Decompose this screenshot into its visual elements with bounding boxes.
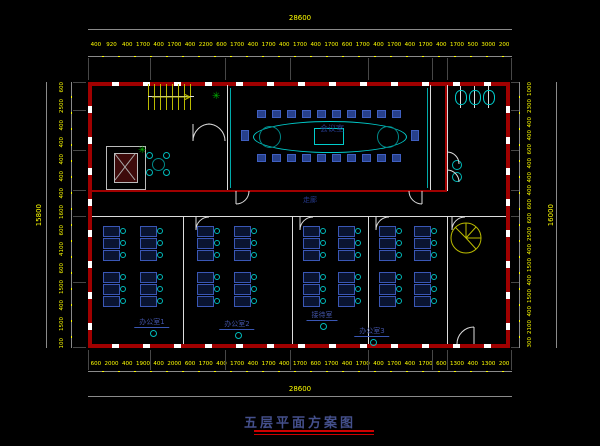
desk-icon (379, 284, 396, 295)
desk-icon (103, 272, 120, 283)
drawing-title: 五层平面方案图 (244, 412, 356, 431)
chair-icon (362, 110, 371, 118)
chair-icon (431, 252, 437, 258)
extension-line (73, 190, 86, 191)
chair-icon (120, 298, 126, 304)
desk-icon (379, 250, 396, 261)
chair-icon (355, 252, 361, 258)
desk-icon (103, 238, 120, 249)
chair-icon (120, 228, 126, 234)
chair-icon (157, 286, 163, 292)
desk-icon (379, 296, 396, 307)
chair-icon (355, 286, 361, 292)
extension-line (511, 150, 519, 151)
desk-icon (234, 284, 251, 295)
desk-icon (303, 250, 320, 261)
extension-line (150, 350, 151, 370)
desk-icon (379, 272, 396, 283)
chair-icon (396, 298, 402, 304)
chair-icon (320, 286, 326, 292)
desk-icon (140, 226, 157, 237)
chair-icon (355, 228, 361, 234)
extension-line (511, 216, 519, 217)
extension-line (447, 58, 448, 80)
chair-icon (392, 154, 401, 162)
chair-icon (377, 110, 386, 118)
extension-line (73, 150, 86, 151)
extension-line (290, 350, 291, 370)
extension-line (73, 216, 86, 217)
chair-icon (377, 154, 386, 162)
chair-icon (320, 240, 326, 246)
extension-line (432, 350, 433, 370)
desk-icon (197, 226, 214, 237)
chair-icon (332, 154, 341, 162)
title-underline-2 (254, 434, 374, 435)
desk-icon (303, 226, 320, 237)
chair-icon (347, 154, 356, 162)
desk-icon (140, 284, 157, 295)
extension-line (73, 347, 86, 348)
chair-icon (431, 286, 437, 292)
title-underline-1 (254, 430, 374, 432)
chair-icon (120, 274, 126, 280)
chair-icon (150, 330, 157, 337)
extension-line (368, 350, 369, 370)
desk-icon (234, 226, 251, 237)
extension-line (150, 58, 151, 80)
extension-line (511, 110, 519, 111)
chair-icon (431, 240, 437, 246)
extension-line (511, 350, 512, 370)
desk-icon (338, 250, 355, 261)
extension-line (368, 58, 369, 80)
desk-icon (197, 284, 214, 295)
chair-icon (396, 286, 402, 292)
extension-line (511, 347, 519, 348)
desk-icon (140, 238, 157, 249)
extension-line (225, 58, 226, 80)
desk-icon (414, 272, 431, 283)
chair-icon (157, 274, 163, 280)
drawing-area: 28600 4009204001700400170040022006001700… (0, 0, 600, 446)
desk-icon (379, 226, 396, 237)
chair-icon (251, 228, 257, 234)
extension-line (511, 282, 519, 283)
extension-line (432, 58, 433, 80)
chair-icon (411, 130, 419, 141)
extension-line (511, 190, 519, 191)
chair-icon (257, 110, 266, 118)
desk-icon (234, 272, 251, 283)
chair-icon (302, 154, 311, 162)
desk-icon (103, 296, 120, 307)
chair-icon (355, 240, 361, 246)
desk-icon (303, 272, 320, 283)
desk-icon (140, 250, 157, 261)
chair-icon (320, 252, 326, 258)
desk-icon (414, 284, 431, 295)
chair-icon (120, 240, 126, 246)
desk-icon (303, 284, 320, 295)
chair-icon (287, 110, 296, 118)
chair-icon (396, 228, 402, 234)
desk-icon (234, 296, 251, 307)
desk-icon (197, 238, 214, 249)
chair-icon (214, 274, 220, 280)
extension-line (88, 350, 89, 370)
chair-icon (235, 332, 242, 339)
chair-icon (251, 298, 257, 304)
chair-icon (251, 274, 257, 280)
chair-icon (157, 228, 163, 234)
desk-icon (234, 238, 251, 249)
chair-icon (396, 252, 402, 258)
chair-icon (214, 298, 220, 304)
chair-icon (157, 252, 163, 258)
chair-icon (392, 110, 401, 118)
desk-icon (338, 226, 355, 237)
chair-icon (287, 154, 296, 162)
desk-icon (414, 238, 431, 249)
chair-icon (214, 286, 220, 292)
chair-icon (370, 339, 377, 346)
desk-icon (338, 296, 355, 307)
desk-icon (140, 272, 157, 283)
extension-line (511, 82, 519, 83)
linework-overlay (0, 0, 600, 446)
chair-icon (431, 228, 437, 234)
desk-icon (103, 284, 120, 295)
chair-icon (396, 274, 402, 280)
desk-icon (414, 250, 431, 261)
extension-line (290, 58, 291, 80)
chair-icon (157, 298, 163, 304)
chair-icon (214, 228, 220, 234)
chair-icon (214, 240, 220, 246)
extension-line (73, 82, 86, 83)
desk-icon (197, 250, 214, 261)
extension-line (225, 350, 226, 370)
desk-icon (103, 250, 120, 261)
extension-line (511, 58, 512, 80)
chair-icon (120, 286, 126, 292)
chair-icon (157, 240, 163, 246)
chair-icon (257, 154, 266, 162)
chair-icon (251, 252, 257, 258)
chair-icon (431, 298, 437, 304)
cad-floorplan-canvas: 28600 4009204001700400170040022006001700… (0, 0, 600, 446)
chair-icon (347, 110, 356, 118)
chair-icon (320, 228, 326, 234)
chair-icon (320, 323, 327, 330)
desk-icon (103, 226, 120, 237)
chair-icon (355, 274, 361, 280)
chair-icon (396, 240, 402, 246)
desk-icon (338, 272, 355, 283)
extension-line (73, 110, 86, 111)
desk-icon (197, 296, 214, 307)
extension-line (73, 282, 86, 283)
chair-icon (251, 240, 257, 246)
extension-line (88, 58, 89, 80)
chair-icon (431, 274, 437, 280)
chair-icon (241, 130, 249, 141)
desk-icon (338, 284, 355, 295)
chair-icon (302, 110, 311, 118)
chair-icon (320, 298, 326, 304)
desk-icon (140, 296, 157, 307)
desk-icon (303, 238, 320, 249)
chair-icon (355, 298, 361, 304)
chair-icon (332, 110, 341, 118)
extension-line (447, 350, 448, 370)
desk-icon (414, 296, 431, 307)
chair-icon (362, 154, 371, 162)
chair-icon (272, 110, 281, 118)
desk-icon (414, 226, 431, 237)
chair-icon (320, 274, 326, 280)
chair-icon (214, 252, 220, 258)
chair-icon (120, 252, 126, 258)
desk-icon (338, 238, 355, 249)
chair-icon (317, 110, 326, 118)
desk-icon (379, 238, 396, 249)
desk-icon (303, 296, 320, 307)
chair-icon (251, 286, 257, 292)
desk-icon (234, 250, 251, 261)
chair-icon (272, 154, 281, 162)
desk-icon (197, 272, 214, 283)
chair-icon (317, 154, 326, 162)
